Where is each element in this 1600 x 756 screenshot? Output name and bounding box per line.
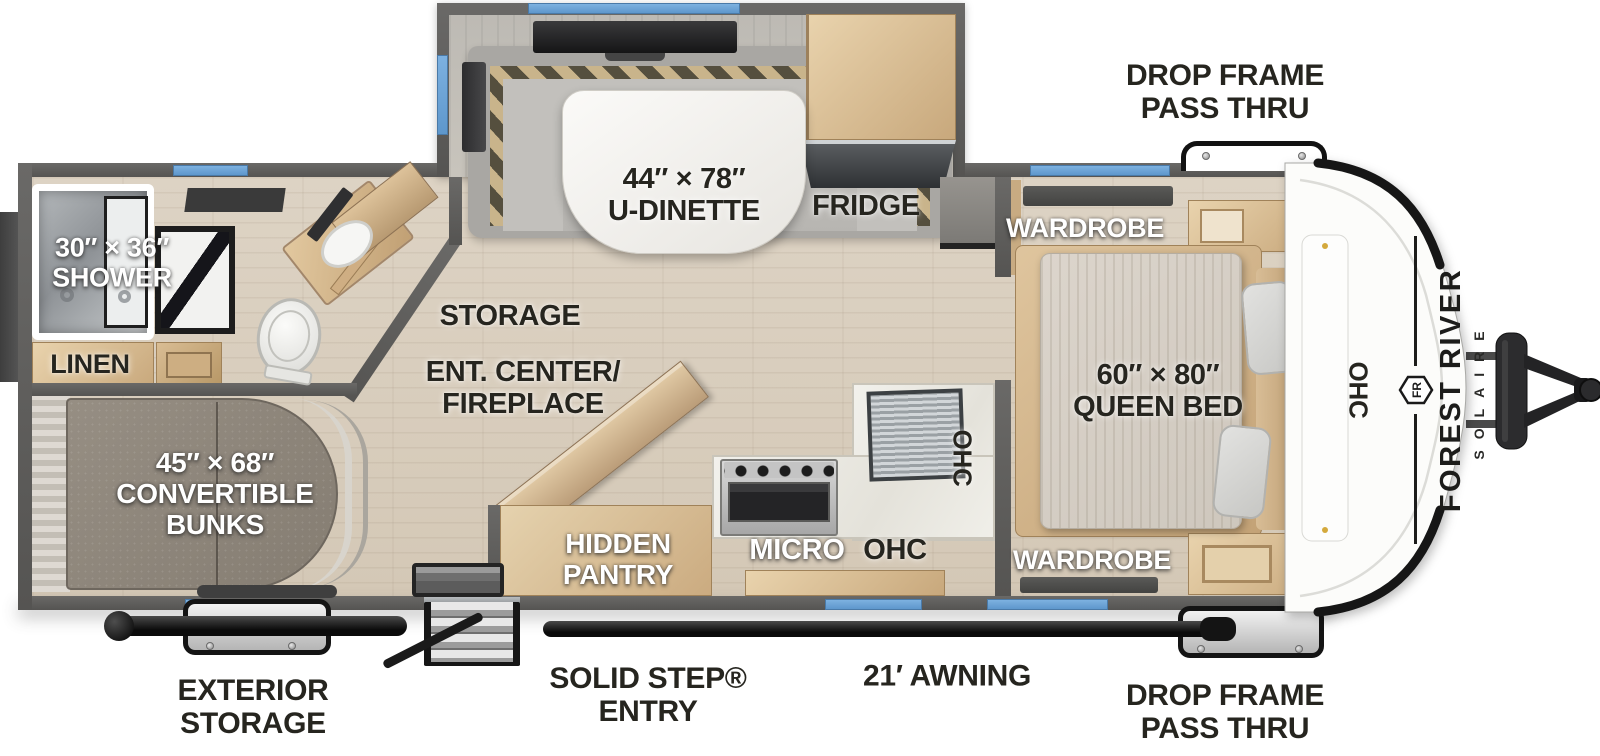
label-drop-frame-top: DROP FRAME PASS THRU [1126, 59, 1324, 125]
bathroom-top-window [173, 165, 248, 176]
dinette-side-window [437, 55, 448, 135]
label-wardrobe-top: WARDROBE [1006, 214, 1164, 244]
label-fridge: FRIDGE [812, 191, 920, 223]
stove-oven-window [728, 482, 830, 522]
exterior-storage-bar [112, 616, 407, 636]
kitchen-base-cabinet [745, 570, 945, 596]
label-exterior-storage: EXTERIOR STORAGE [178, 674, 329, 740]
label-storage: STORAGE [440, 301, 581, 333]
handle-screw [1202, 152, 1210, 160]
awning-end-cap [1200, 617, 1236, 641]
label-solid-step-entry: SOLID STEP® ENTRY [549, 662, 746, 728]
bedroom-bottom-window [987, 599, 1108, 610]
label-ohc-front: OHC [1344, 362, 1373, 419]
tray-screw [1295, 645, 1303, 653]
brand-rule-left [1414, 414, 1417, 544]
tray-screw [288, 642, 296, 650]
label-ent-center: ENT. CENTER/ FIREPLACE [426, 357, 621, 421]
stove-knob-strip [724, 462, 834, 478]
bathroom-vent [184, 188, 285, 212]
brand-emblem-row: FR [1398, 236, 1434, 544]
bathroom-base-drawer [166, 352, 212, 378]
dinette-tv-stand [605, 53, 665, 61]
label-hidden-pantry: HIDDEN PANTRY [563, 529, 673, 591]
entry-inner-step [412, 563, 504, 597]
label-bunks: 45″ × 68″ CONVERTIBLE BUNKS [116, 448, 313, 540]
floorplan-canvas: FR FOREST RIVER SOLAIRE [0, 0, 1600, 756]
label-drop-frame-bottom: DROP FRAME PASS THRU [1126, 679, 1324, 745]
wardrobe-bottom-rail [1020, 577, 1158, 593]
bedroom-top-window [1030, 165, 1170, 176]
entry-cabinet [940, 177, 995, 249]
label-wardrobe-bottom: WARDROBE [1013, 546, 1171, 576]
svg-text:FR: FR [1410, 382, 1424, 398]
wall-rear-left [18, 163, 32, 610]
bedroom-wall-lower [995, 380, 1011, 596]
brand-logo: FR FOREST RIVER SOLAIRE [1405, 175, 1479, 605]
forest-river-emblem-icon: FR [1398, 374, 1434, 406]
label-ohc-kitchen: OHC [863, 535, 927, 567]
exterior-storage-bar-cap [104, 611, 134, 641]
brand-rule-right [1414, 236, 1417, 366]
tray-screw [206, 642, 214, 650]
rear-bumper [0, 212, 20, 382]
bunks-slide-rail [197, 585, 337, 598]
awning-bar [543, 621, 1211, 637]
bedroom-bench-inset [1202, 545, 1272, 583]
dinette-top-window [528, 3, 740, 14]
bedroom-overhead-inset [1200, 209, 1244, 243]
dinette-side-tv [462, 62, 486, 152]
bathroom-entry-wall [449, 177, 462, 245]
kitchen-bottom-window [825, 599, 922, 610]
label-shower: 30″ × 36″ SHOWER [52, 233, 172, 292]
brand-name: FOREST RIVER [1435, 268, 1468, 512]
dinette-tv [533, 21, 737, 53]
tray-screw [1197, 645, 1205, 653]
label-micro: MICRO [749, 535, 844, 567]
label-dinette: 44″ × 78″ U-DINETTE [608, 164, 760, 228]
fridge-cabinet [806, 14, 956, 140]
label-awning: 21′ AWNING [863, 660, 1031, 693]
label-linen: LINEN [50, 350, 130, 380]
wardrobe-top-rail [1023, 186, 1173, 206]
fridge-front [800, 140, 956, 188]
brand-sub: SOLAIRE [1471, 320, 1487, 459]
bunks-side-fabric [32, 396, 70, 592]
label-queen-bed: 60″ × 80″ QUEEN BED [1073, 360, 1243, 424]
pillow-bottom [1211, 424, 1272, 521]
label-ohc-kitchen-wall: OHC [948, 430, 977, 487]
